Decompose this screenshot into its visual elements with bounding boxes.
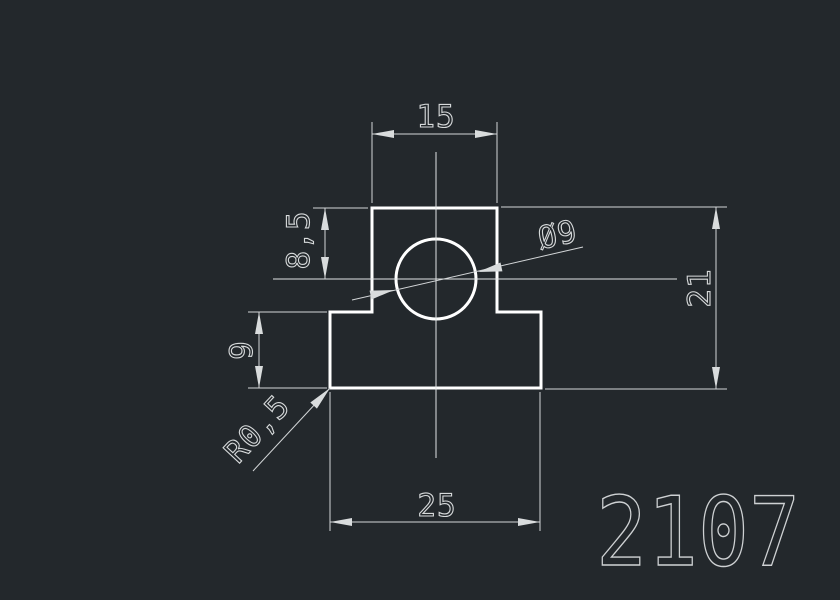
dim-text-lower-height[interactable]: 9 bbox=[224, 340, 260, 360]
dim-text-bottom-width[interactable]: 25 bbox=[417, 488, 456, 524]
centerlines[interactable] bbox=[273, 152, 677, 458]
arrowhead-icon bbox=[321, 257, 329, 279]
arrowhead-icon bbox=[475, 130, 497, 138]
dim-lower-height[interactable]: 9 bbox=[224, 312, 327, 388]
dim-text-fillet-radius[interactable]: R0,5 bbox=[218, 388, 298, 470]
arrowhead-icon bbox=[372, 130, 394, 138]
arrowhead-icon bbox=[712, 207, 720, 229]
part-number-text[interactable]: 2107 bbox=[596, 478, 800, 588]
arrowhead-icon bbox=[255, 366, 263, 388]
dim-top-width[interactable]: 15 bbox=[372, 99, 497, 203]
dim-text-hole-diameter[interactable]: Ø9 bbox=[535, 213, 581, 257]
dim-text-top-width[interactable]: 15 bbox=[416, 99, 455, 135]
dim-bottom-width[interactable]: 25 bbox=[330, 392, 540, 531]
dim-text-upper-height[interactable]: 8,5 bbox=[281, 211, 317, 270]
arrowhead-icon bbox=[255, 312, 263, 334]
dim-total-height[interactable]: 21 bbox=[501, 207, 727, 389]
arrowhead-icon bbox=[712, 367, 720, 389]
arrowhead-icon bbox=[518, 518, 540, 526]
arrowhead-icon bbox=[321, 208, 329, 230]
dim-upper-height[interactable]: 8,5 bbox=[281, 208, 368, 279]
dim-text-total-height[interactable]: 21 bbox=[682, 268, 718, 307]
arrowhead-icon bbox=[477, 263, 502, 277]
drawing-canvas: 15 8,5 9 21 bbox=[0, 0, 840, 600]
cad-viewport: 15 8,5 9 21 bbox=[0, 0, 840, 600]
leader-fillet-radius[interactable]: R0,5 bbox=[218, 385, 334, 471]
arrowhead-icon bbox=[330, 518, 352, 526]
